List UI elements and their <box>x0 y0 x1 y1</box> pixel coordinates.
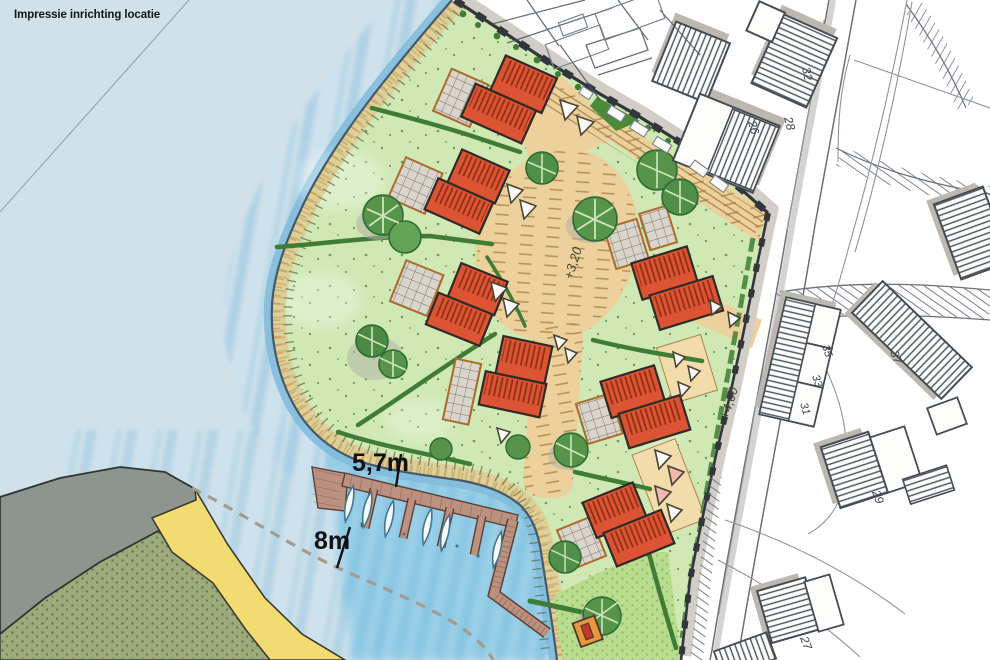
svg-text:Impressie inrichting locatie: Impressie inrichting locatie <box>14 9 160 21</box>
